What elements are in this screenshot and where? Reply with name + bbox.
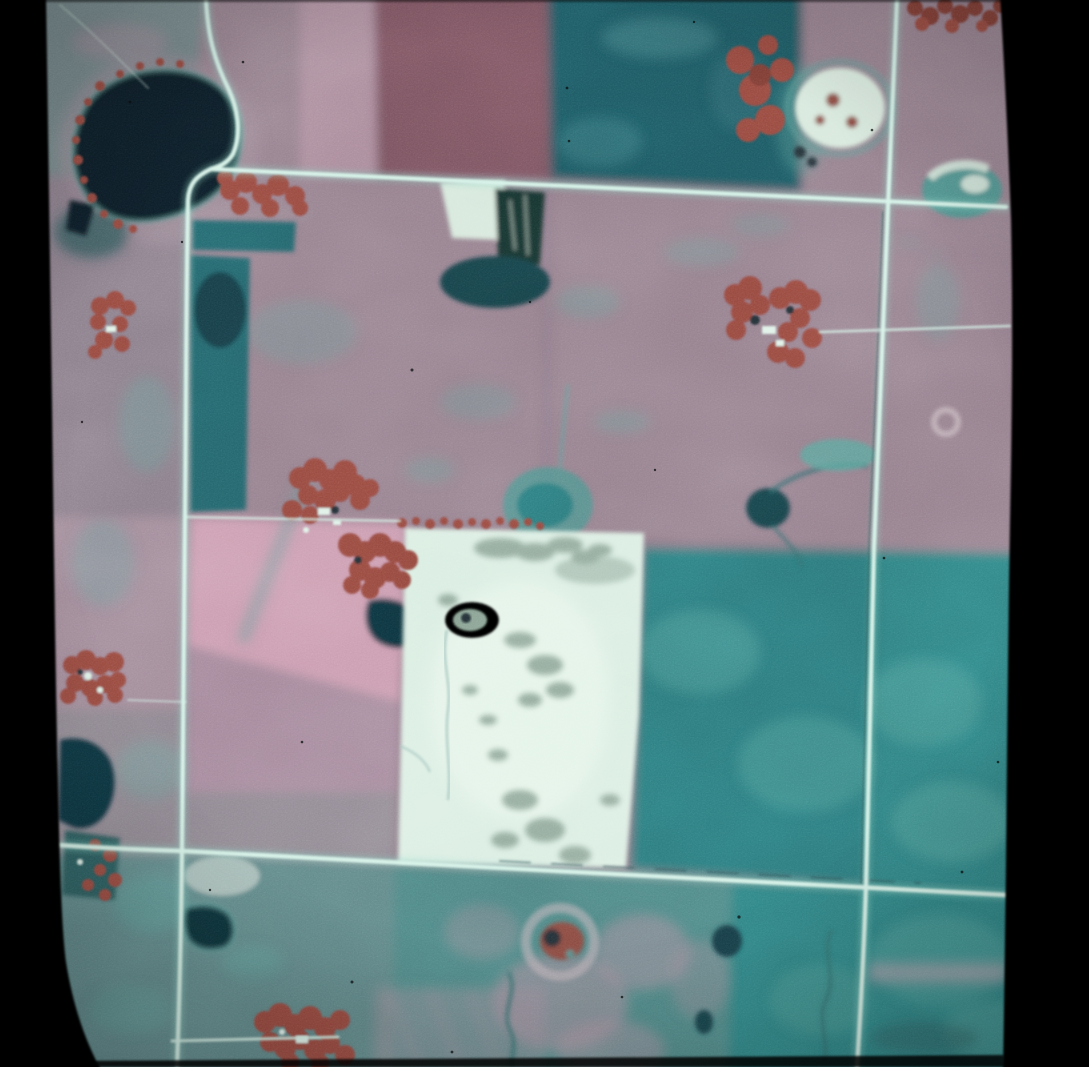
slide-photo (0, 0, 1089, 1067)
film-grain (0, 0, 1089, 1067)
border-top-strip (0, 0, 1089, 2)
vignette (0, 0, 1089, 1067)
border-right (1000, 0, 1089, 1067)
aerial-photo (0, 0, 1089, 1067)
